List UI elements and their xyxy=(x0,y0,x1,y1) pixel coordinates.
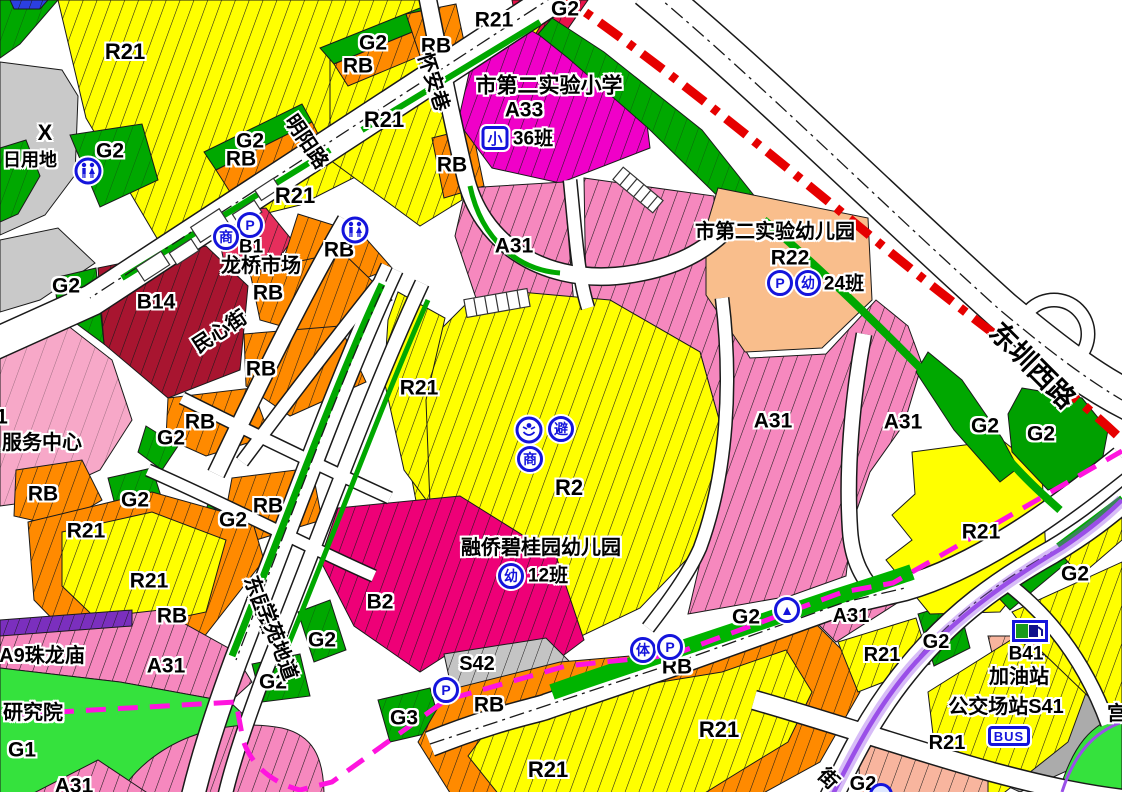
zoning-map: R21G2RBRBR21G2R21RBX日用地G2G2RBR21B1龙桥市场RB… xyxy=(0,0,1122,792)
map-canvas xyxy=(0,0,1122,792)
